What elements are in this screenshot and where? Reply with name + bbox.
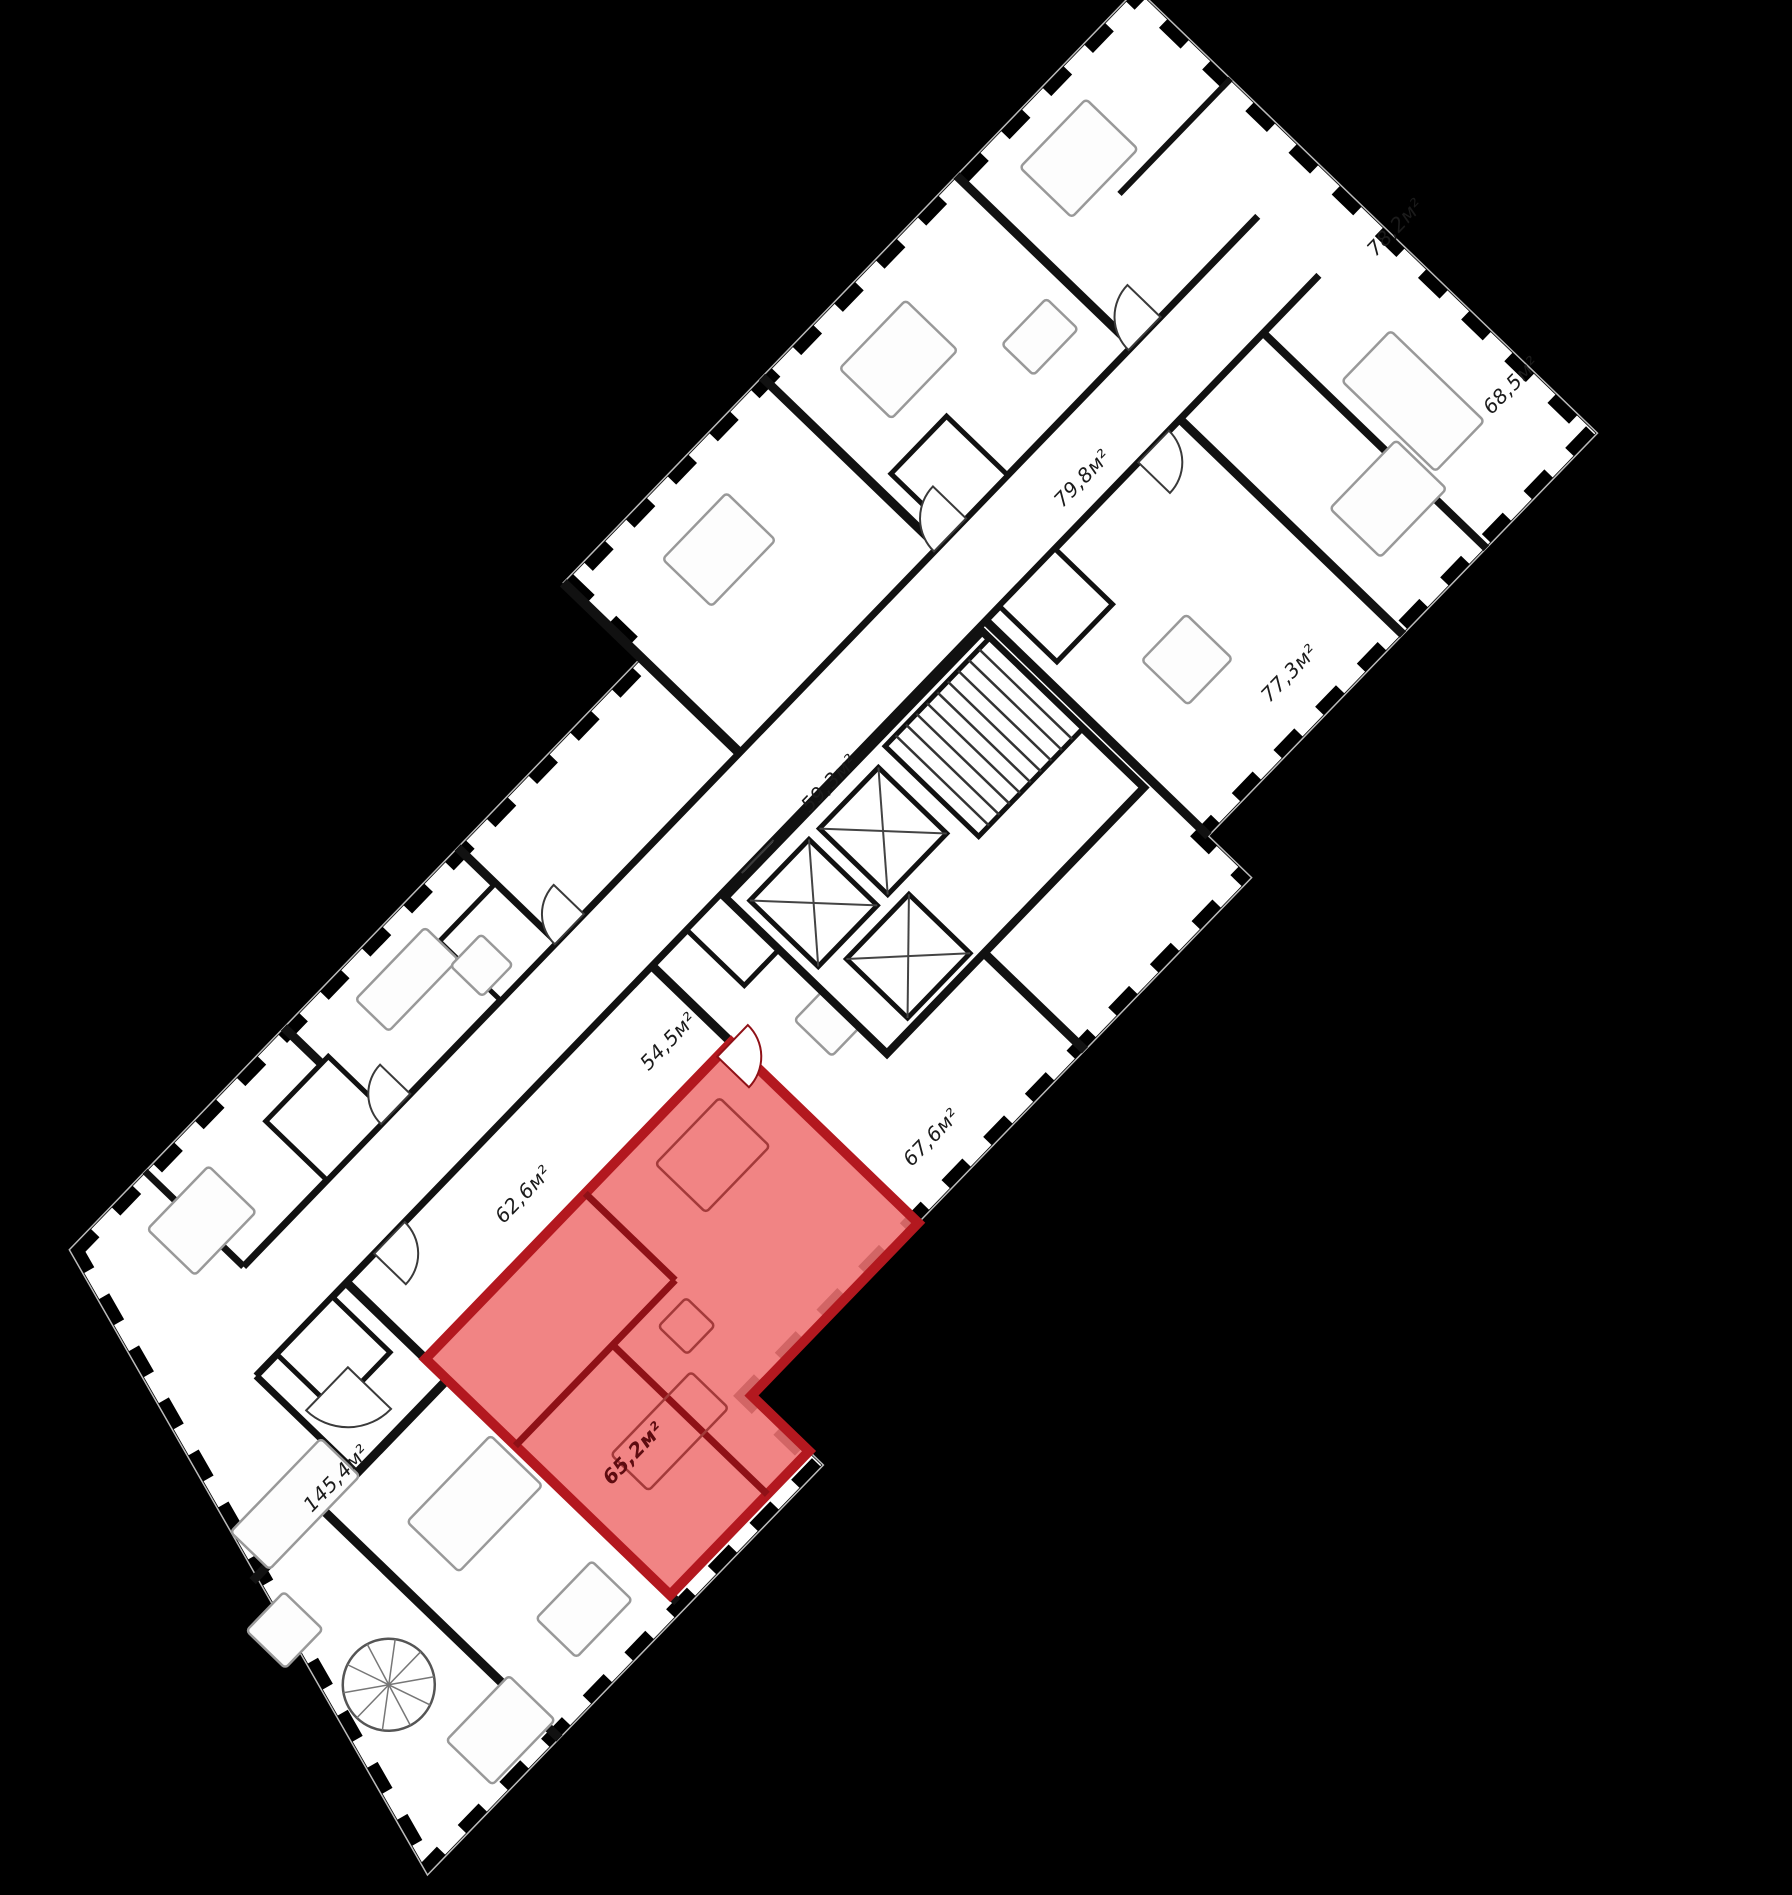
floorplan-stage: 78,2м² 68,5м² 79,8м² 77,3м² 59,3м² 54,5м… [0,0,1792,1895]
floor-plan: 78,2м² 68,5м² 79,8м² 77,3м² 59,3м² 54,5м… [0,0,1792,1895]
